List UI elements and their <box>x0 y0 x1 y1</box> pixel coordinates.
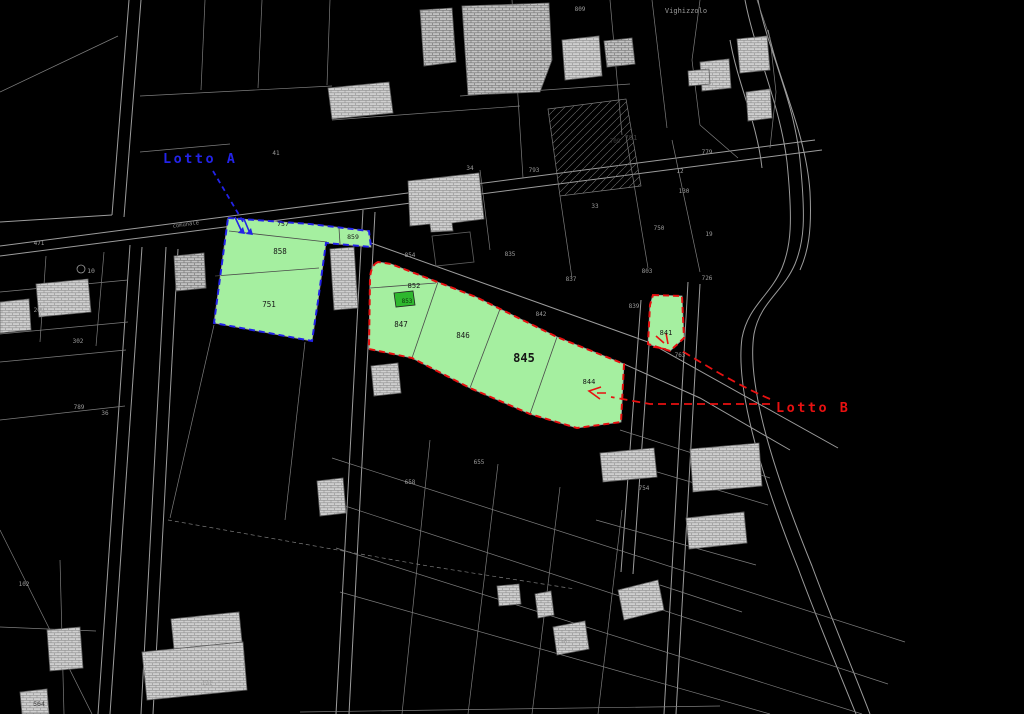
map-label-130: 130 <box>679 188 690 195</box>
map-label-841: 841 <box>660 329 673 337</box>
map-label-858: 858 <box>273 247 287 256</box>
map-label-791: 791 <box>625 134 638 142</box>
building <box>604 38 635 67</box>
map-label-842: 842 <box>536 311 547 318</box>
map-label-564: 564 <box>33 700 45 708</box>
map-label-757: 757 <box>277 220 289 228</box>
map-label-854: 854 <box>405 252 416 259</box>
lotto-a-label: Lotto A <box>163 151 237 167</box>
map-label-779: 779 <box>702 149 713 156</box>
map-label-10: 10 <box>87 267 95 275</box>
building <box>317 478 346 516</box>
map-label-835: 835 <box>505 251 516 258</box>
map-label-754: 754 <box>639 485 650 492</box>
building <box>142 642 247 700</box>
map-label-789: 789 <box>74 404 85 411</box>
map-label-758: 758 <box>557 638 568 645</box>
building <box>462 3 552 95</box>
building <box>562 36 602 80</box>
map-label-845: 845 <box>513 351 535 365</box>
building <box>686 512 747 549</box>
map-label-853: 853 <box>402 298 413 305</box>
building <box>688 69 710 86</box>
map-label-750: 750 <box>654 225 665 232</box>
building <box>497 584 521 606</box>
map-label-658: 658 <box>405 479 416 486</box>
map-label-839: 839 <box>629 303 640 310</box>
map-label-844: 844 <box>583 378 596 386</box>
hatched-parcel-791 <box>548 99 641 196</box>
map-label-41: 41 <box>272 150 280 157</box>
building <box>371 363 401 396</box>
map-label-34: 34 <box>466 165 474 172</box>
map-label-655: 655 <box>474 459 485 466</box>
map-label-vighizzolo: Vighizzolo <box>665 7 707 15</box>
map-label-12: 12 <box>676 168 684 175</box>
building <box>737 36 770 73</box>
map-label-209: 209 <box>34 307 45 314</box>
map-label-36: 36 <box>101 410 109 417</box>
building <box>330 247 358 310</box>
building <box>420 8 456 66</box>
cadastral-map: Lotto A Lotto B 757859858751852853847846… <box>0 0 1024 714</box>
building <box>47 627 83 671</box>
map-label-751: 751 <box>262 300 276 309</box>
map-label-846: 846 <box>456 331 470 340</box>
map-label-302: 302 <box>73 338 84 345</box>
map-label-763: 763 <box>675 352 686 359</box>
lotto-b-label: Lotto B <box>776 400 850 416</box>
building <box>746 89 772 121</box>
map-label-726: 726 <box>702 275 713 282</box>
map-label-847: 847 <box>394 320 408 329</box>
map-label-33: 33 <box>591 203 599 210</box>
building <box>535 591 554 618</box>
building <box>0 299 31 333</box>
map-label-803: 803 <box>642 268 653 275</box>
map-label-121: 121 <box>202 680 213 687</box>
map-label-837: 837 <box>566 276 577 283</box>
map-label-859: 859 <box>347 233 359 241</box>
map-label-709: 709 <box>610 138 621 145</box>
map-label-102: 102 <box>19 581 30 588</box>
map-label-793: 793 <box>529 167 540 174</box>
building <box>174 253 206 291</box>
building <box>600 448 657 482</box>
map-label-852: 852 <box>408 282 421 290</box>
map-label-809: 809 <box>575 6 586 13</box>
building <box>328 82 393 119</box>
map-label-471: 471 <box>34 240 45 247</box>
map-label-19: 19 <box>705 231 713 238</box>
building <box>690 443 762 492</box>
